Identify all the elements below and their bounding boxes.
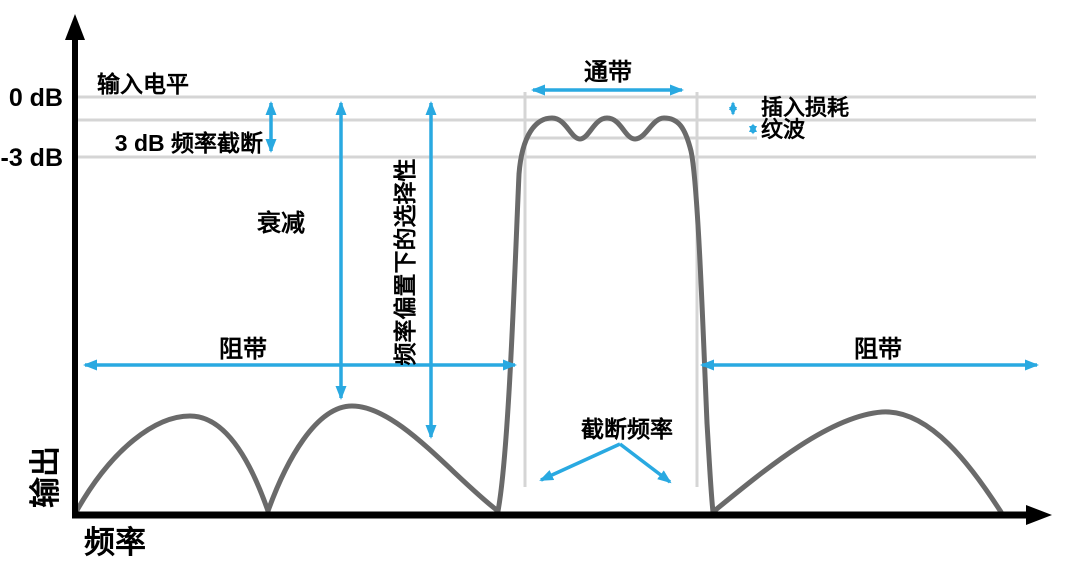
selectivity-label: 频率偏置下的选择性 (392, 159, 418, 366)
cutoff-frequency-right-arrow (620, 444, 670, 482)
cutoff-frequency-label: 截断频率 (581, 416, 673, 442)
stopband-left-label: 阻带 (219, 336, 267, 363)
tick-zero-db: 0 dB (9, 84, 63, 112)
x-axis-label: 频率 (84, 525, 146, 560)
attenuation-label: 衰减 (256, 209, 305, 237)
three-db-cutoff-label: 3 dB 频率截断 (115, 130, 263, 156)
filter-response-curve (76, 118, 1001, 512)
ripple-label: 纹波 (761, 117, 806, 142)
filter-response-diagram: 0 dB -3 dB 输入电平 3 dB 频率截断 衰减 频率偏置下的选择性 阻… (0, 0, 1080, 569)
tick-minus-three-db: -3 dB (1, 144, 64, 172)
input-level-label: 输入电平 (97, 71, 189, 97)
stopband-right-label: 阻带 (854, 336, 902, 363)
axes (72, 36, 1030, 518)
labels: 0 dB -3 dB 输入电平 3 dB 频率截断 衰减 频率偏置下的选择性 阻… (1, 59, 903, 560)
cutoff-frequency-left-arrow (541, 444, 620, 480)
diagram-canvas: 0 dB -3 dB 输入电平 3 dB 频率截断 衰减 频率偏置下的选择性 阻… (0, 0, 1080, 569)
y-axis-label: 输出 (28, 446, 63, 508)
passband-label: 通带 (584, 59, 632, 86)
